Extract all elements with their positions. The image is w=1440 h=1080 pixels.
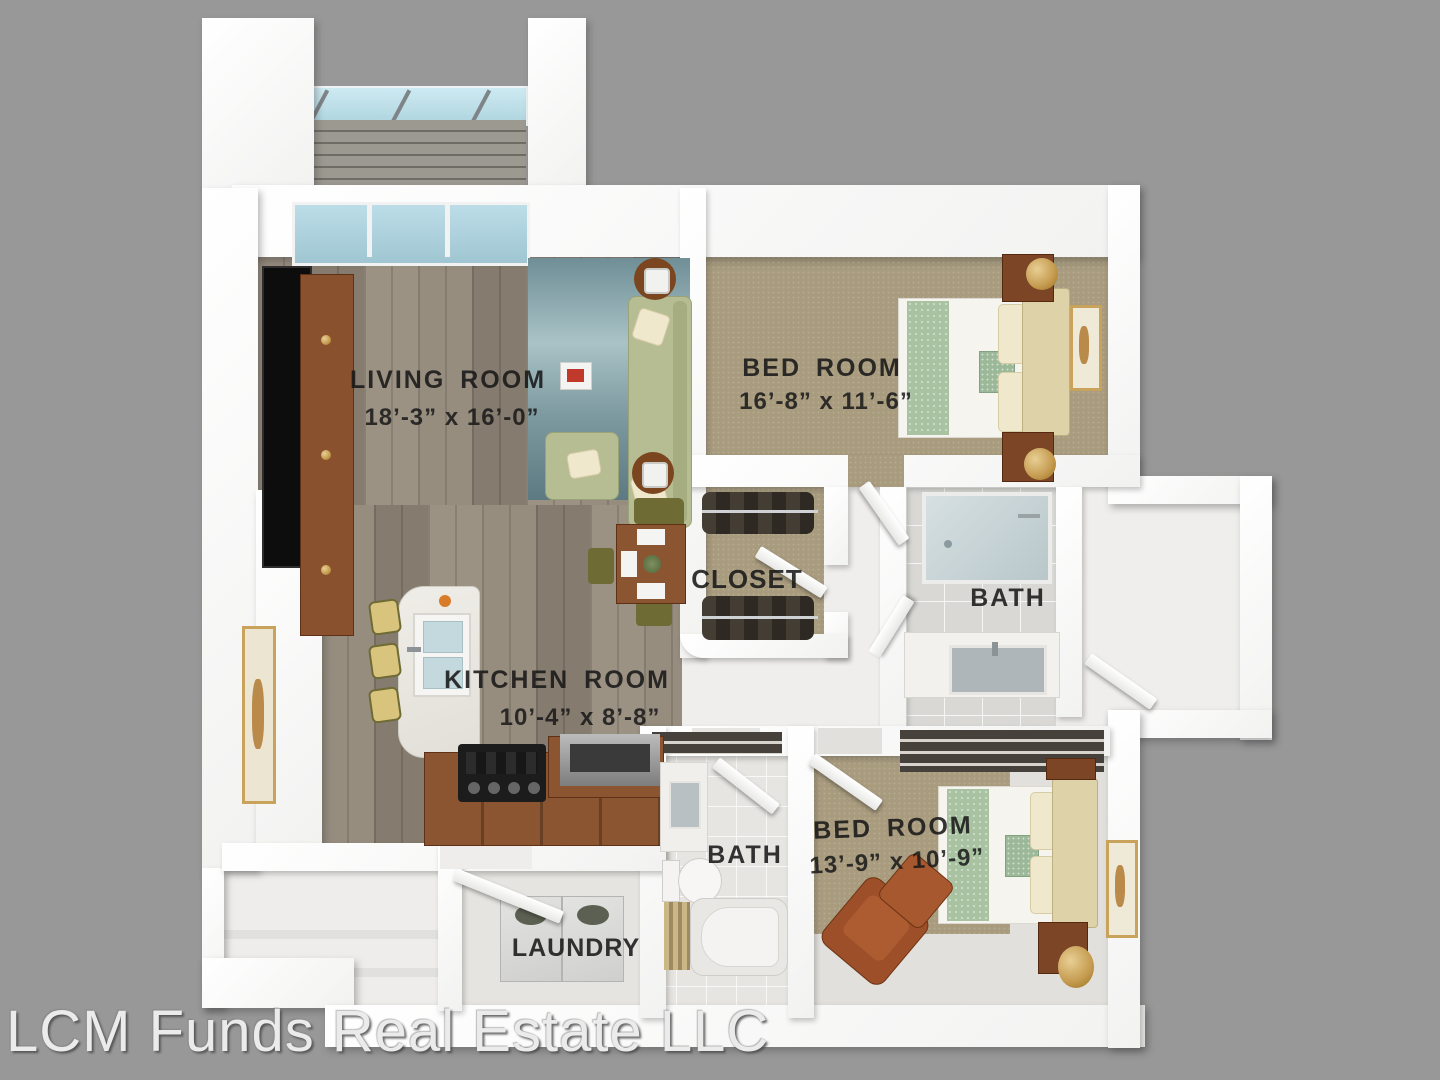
table-lamp: [642, 462, 668, 488]
fruit-bowl-icon: [439, 595, 451, 607]
bathtub-basin: [701, 907, 779, 967]
room-dims-kitchen: 10’-4” x 8’-8”: [500, 704, 661, 732]
room-dims-living: 18’-3” x 16’-0”: [364, 404, 539, 432]
bath-mat: [664, 902, 690, 970]
door-frame: [445, 205, 450, 257]
room-label-bedroom2: BED ROOM: [813, 811, 973, 846]
hanging-clothes: [702, 492, 814, 534]
wall: [202, 18, 314, 190]
closet-rod: [702, 510, 818, 513]
room-label-bath1: BATH: [970, 584, 1046, 613]
placemat: [637, 583, 665, 599]
dining-chair: [588, 548, 614, 584]
media-console: [300, 274, 354, 636]
wall: [528, 18, 586, 188]
sofa: [628, 296, 692, 528]
faucet-icon: [407, 647, 421, 652]
sliding-glass-door: [292, 202, 530, 266]
bar-stool: [368, 642, 402, 680]
room-label-living: LIVING ROOM: [350, 366, 546, 395]
room-label-bedroom1: BED ROOM: [742, 354, 902, 383]
wall: [1108, 185, 1140, 485]
faucet-icon: [992, 642, 998, 656]
floor-plan: LIVING ROOM 18’-3” x 16’-0” BED ROOM 16’…: [0, 0, 1440, 1080]
linen-shelf: [652, 732, 782, 754]
door-gap: [848, 455, 904, 487]
entry-step: [224, 930, 438, 939]
room-dims-bedroom1: 16’-8” x 11’-6”: [739, 388, 913, 416]
dining-chair: [634, 498, 670, 524]
armchair: [545, 432, 619, 500]
room-label-kitchen: KITCHEN ROOM: [444, 666, 670, 695]
art-image: [1079, 326, 1089, 364]
stove-knob-icon: [468, 782, 480, 794]
lamp: [1058, 946, 1094, 988]
watermark: LCM Funds Real Estate LLC: [6, 998, 769, 1065]
dining-table: [616, 524, 686, 604]
vanity-sink: [949, 645, 1047, 695]
side-table: [632, 452, 674, 494]
book-icon: [567, 369, 584, 382]
room-label-bath2: BATH: [707, 841, 783, 870]
stove-grate: [466, 752, 538, 774]
door-gap: [440, 845, 532, 869]
console-knob-icon: [321, 450, 331, 460]
door-frame: [367, 205, 372, 257]
bathtub: [690, 898, 788, 976]
balcony-deck: [314, 120, 526, 188]
door-gap: [818, 728, 882, 754]
bar-stool: [368, 598, 402, 636]
placemat: [637, 529, 665, 545]
room-label-laundry: LAUNDRY: [512, 934, 640, 963]
wall: [824, 487, 848, 565]
hall-closet-floor: [1082, 487, 1240, 726]
art-image: [1115, 865, 1125, 907]
headboard: [1022, 288, 1070, 436]
lamp: [1026, 258, 1058, 290]
cooktop-tray: [570, 744, 650, 772]
stove: [458, 744, 546, 802]
bath-vanity: [660, 762, 708, 852]
stove-knob-icon: [488, 782, 500, 794]
centerpiece-plant-icon: [643, 555, 661, 573]
console-knob-icon: [321, 565, 331, 575]
coffee-table: [560, 362, 592, 390]
bed-blanket: [907, 301, 949, 435]
table-lamp: [644, 268, 670, 294]
cooktop: [560, 734, 660, 786]
vanity-sink: [669, 781, 701, 829]
room-label-closet: CLOSET: [691, 564, 802, 595]
sofa-back: [673, 301, 687, 523]
console-knob-icon: [321, 335, 331, 345]
shower: [922, 492, 1052, 584]
stove-knob-icon: [508, 782, 520, 794]
bath-vanity: [904, 632, 1060, 698]
placemat: [621, 551, 637, 577]
lamp: [1024, 448, 1056, 480]
headboard: [1052, 778, 1098, 928]
stove-knob-icon: [528, 782, 540, 794]
shower-drain-icon: [944, 540, 952, 548]
shower-faucet-icon: [1018, 514, 1040, 518]
dryer-lid-icon: [577, 905, 609, 925]
wall-art: [1106, 840, 1138, 938]
sink-basin: [423, 621, 463, 653]
side-table: [634, 258, 676, 300]
closet-rod: [702, 616, 818, 619]
bar-stool: [368, 686, 402, 724]
wall: [680, 455, 1140, 487]
sofa-pillow: [631, 307, 671, 347]
armchair-pillow: [566, 448, 602, 479]
art-image: [252, 679, 264, 749]
wall-art: [1070, 305, 1102, 391]
wall: [1240, 476, 1272, 740]
wall-art: [242, 626, 276, 804]
nightstand: [1046, 758, 1096, 780]
